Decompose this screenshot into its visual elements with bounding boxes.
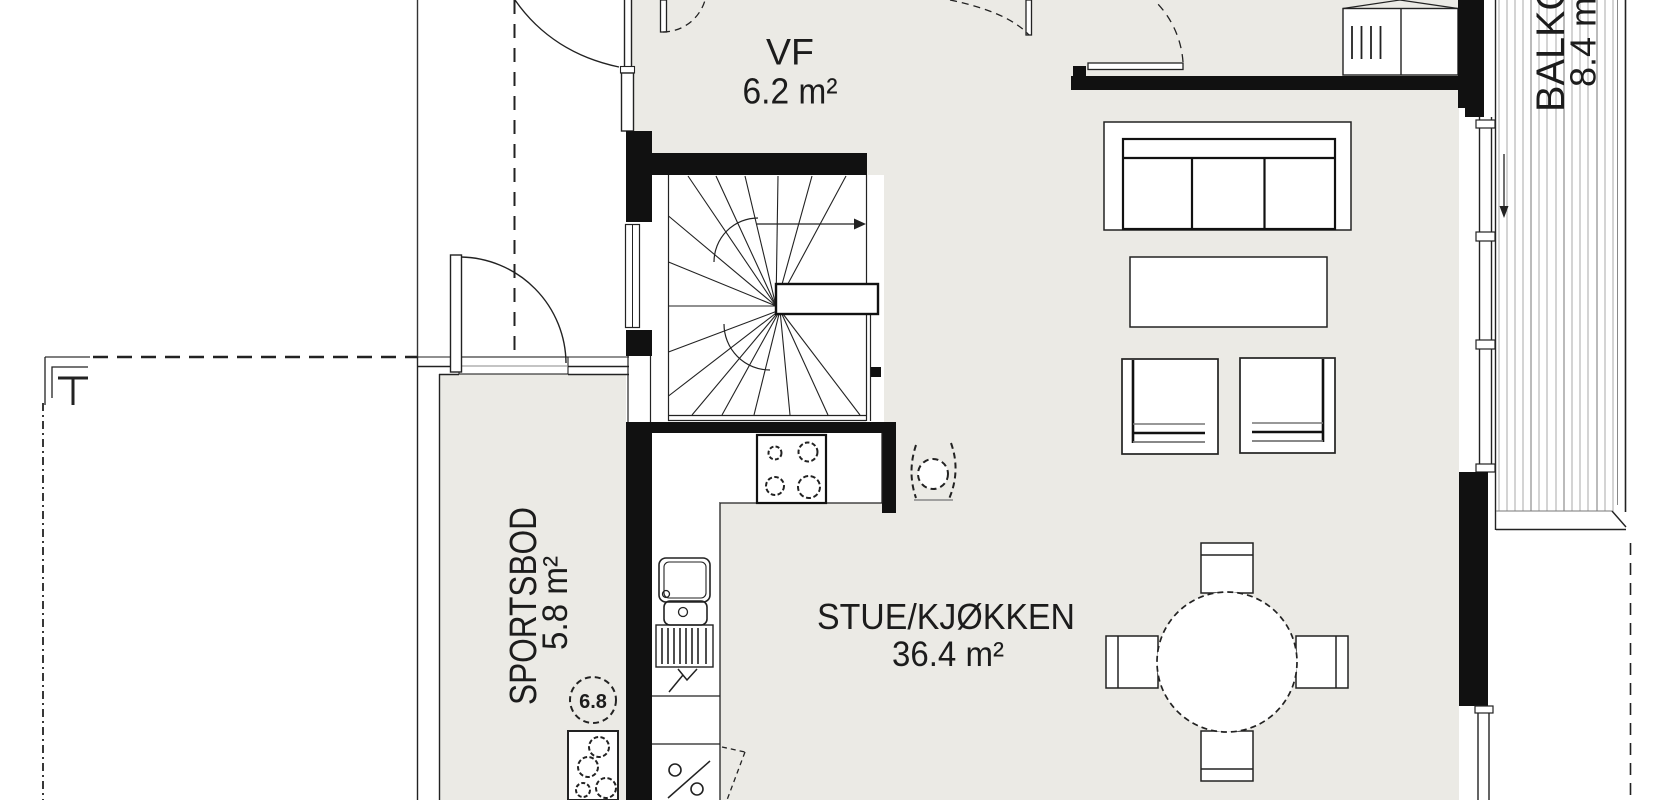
svg-text:VF: VF: [766, 31, 814, 73]
svg-text:5.8 m²: 5.8 m²: [536, 556, 575, 650]
svg-text:8.4 m²: 8.4 m²: [1563, 0, 1604, 87]
svg-text:6.8: 6.8: [579, 691, 607, 713]
svg-text:STUE/KJØKKEN: STUE/KJØKKEN: [817, 596, 1075, 637]
svg-text:36.4 m²: 36.4 m²: [892, 635, 1004, 674]
svg-text:6.2 m²: 6.2 m²: [743, 71, 838, 112]
